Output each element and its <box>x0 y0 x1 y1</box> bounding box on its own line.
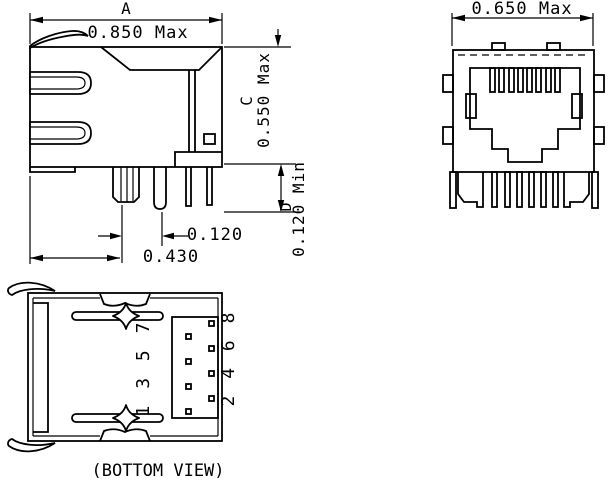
opening-side-pad-left <box>466 94 476 118</box>
bottom-view: 1 3 5 7 2 4 6 8 (BOTTOM VIEW) <box>8 283 239 481</box>
dim-a-value: 0.850 Max <box>87 23 188 43</box>
dim-edge-to-post: 0.430 <box>30 176 199 267</box>
odd-pin-labels: 1 3 5 7 <box>133 320 154 417</box>
even-pin-labels: 2 4 6 8 <box>218 310 239 407</box>
side-body-outline <box>30 47 222 167</box>
bottom-view-caption: (BOTTOM VIEW) <box>91 461 224 481</box>
arrowhead <box>30 255 43 261</box>
rj45-opening <box>470 68 580 162</box>
arrowhead <box>275 35 281 47</box>
dim-width-value: 0.650 Max <box>471 0 572 19</box>
arrowhead <box>162 233 174 239</box>
arrowhead <box>107 255 120 261</box>
front-shield-leg-left <box>458 172 483 207</box>
side-view: A 0.850 Max <box>30 0 308 267</box>
side-hook-pin <box>154 167 166 209</box>
side-pin-1 <box>186 167 191 206</box>
front-wall-leg-left <box>450 172 456 208</box>
side-body-chamfer <box>101 47 222 70</box>
front-body <box>443 43 604 172</box>
arrowhead <box>580 15 593 21</box>
contact-slots <box>490 68 560 92</box>
arrowhead <box>209 17 222 23</box>
arrowhead <box>110 233 122 239</box>
bottom-edge-tab-bottom <box>100 429 150 441</box>
technical-drawing-page: A 0.850 Max <box>0 0 612 485</box>
bottom-left-bracket <box>33 303 48 432</box>
side-emi-spring <box>30 31 88 48</box>
front-wall-leg-right <box>592 172 598 208</box>
side-detail-square <box>204 134 215 144</box>
side-pin-2 <box>207 167 212 205</box>
front-contact-legs <box>492 172 558 207</box>
front-side-tab <box>443 127 453 144</box>
dim-d-value: 0.120 Min <box>289 161 308 257</box>
dim-c: C 0.550 Max <box>224 29 296 164</box>
front-legs <box>450 172 598 208</box>
dim-edge-to-post-value: 0.430 <box>143 247 199 267</box>
bottom-pin-squares <box>186 321 214 414</box>
front-shield-leg-right <box>564 172 589 207</box>
side-ledge <box>175 152 222 167</box>
front-view: 0.650 Max <box>443 0 604 208</box>
dim-c-value: 0.550 Max <box>254 52 273 148</box>
arrowhead <box>452 15 465 21</box>
side-internal-wall <box>189 70 195 152</box>
dim-pin-pitch-value: 0.120 <box>187 225 243 245</box>
arrowhead <box>278 164 284 176</box>
front-side-tab <box>594 75 604 92</box>
side-mount-post <box>113 167 139 202</box>
side-body <box>30 31 222 172</box>
front-top-tab-left <box>492 43 505 50</box>
connector-drawing: A 0.850 Max <box>0 0 612 485</box>
side-pins <box>113 167 212 209</box>
bottom-pin-field <box>172 317 218 418</box>
dim-a-letter: A <box>121 0 131 18</box>
front-side-tab <box>594 127 604 144</box>
side-latch-finger-lower <box>30 122 91 144</box>
dim-width: 0.650 Max <box>452 0 593 46</box>
arrowhead <box>30 17 43 23</box>
side-latch-finger-upper <box>30 72 91 94</box>
front-side-tab <box>443 75 453 92</box>
front-top-tab-right <box>547 43 560 50</box>
